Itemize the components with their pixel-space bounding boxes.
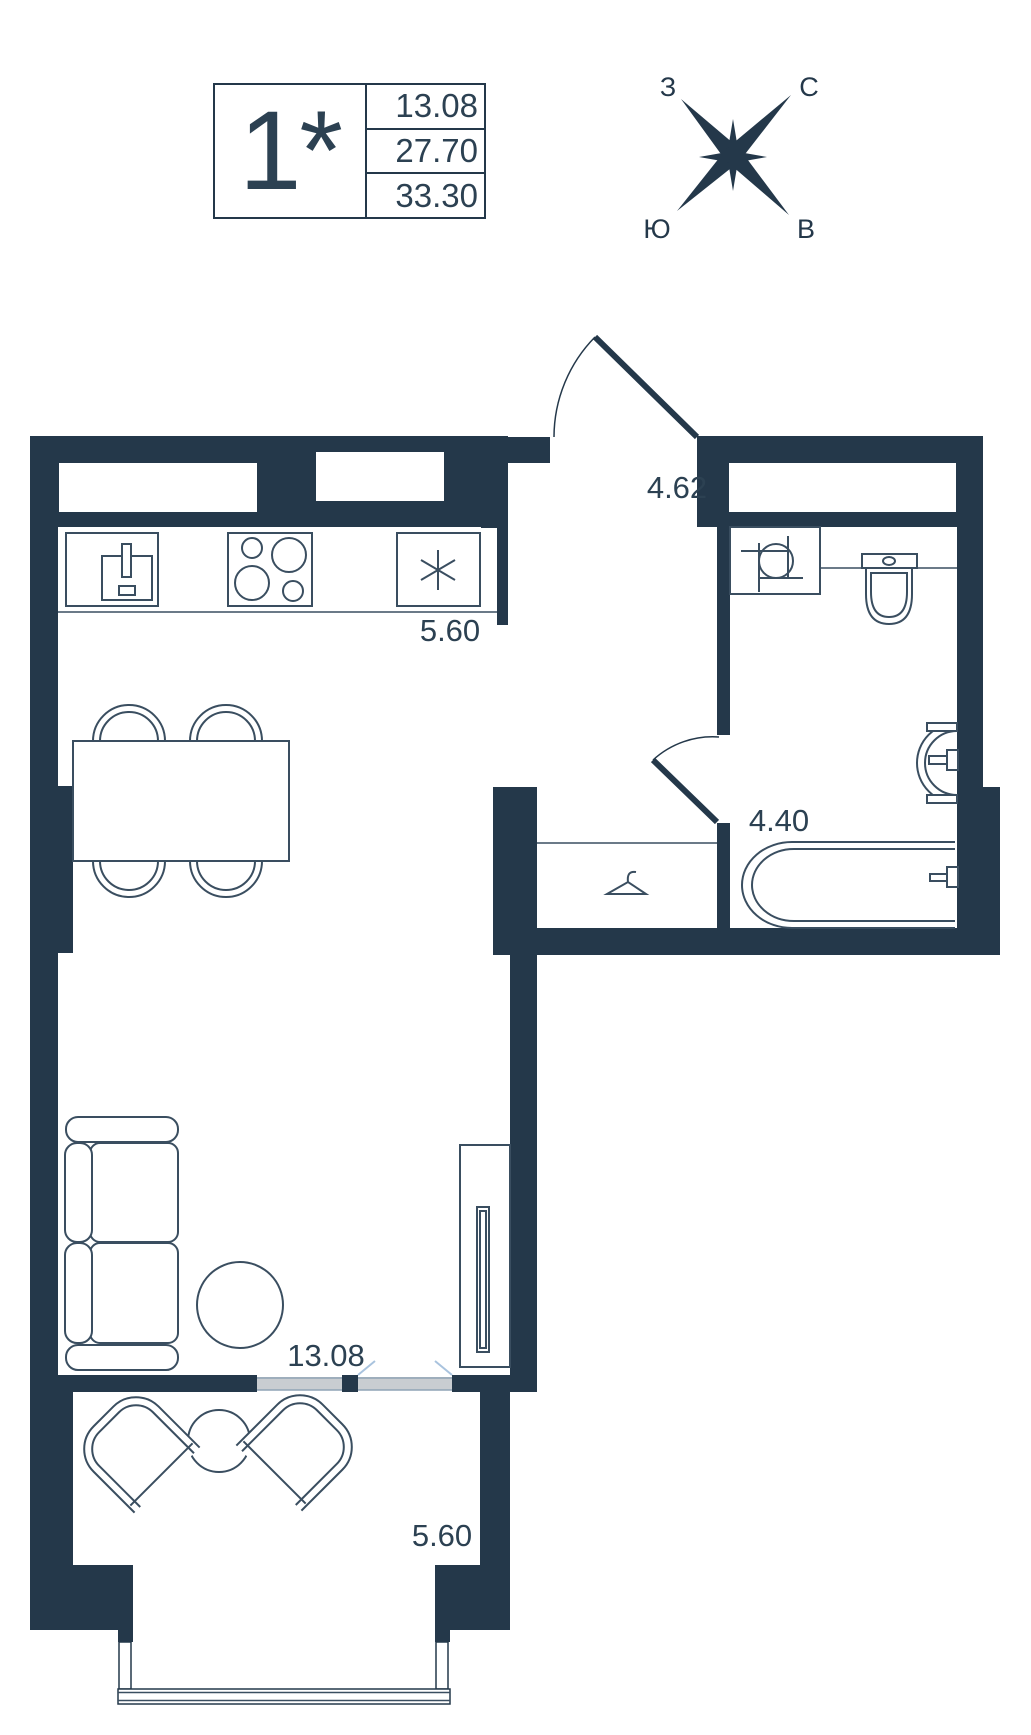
balcony-front-windows [118, 1642, 450, 1704]
corner-sink-icon [917, 723, 958, 803]
kitchen-window-2 [315, 451, 445, 502]
fridge-snowflake-icon [397, 533, 480, 606]
washbasin-icon [730, 527, 820, 594]
living-area-label: 13.08 [287, 1338, 365, 1373]
tv-stand [460, 1145, 510, 1367]
walls [30, 436, 1000, 1704]
compass-south-label: Ю [643, 214, 670, 244]
hallway-area-label: 4.62 [647, 470, 707, 505]
bathtub-icon [742, 842, 958, 928]
compass-star-icon [677, 95, 791, 215]
kitchen-window-1 [58, 462, 258, 513]
dining-chair [93, 861, 165, 897]
floor-plan-page: 1* 13.08 27.70 33.30 [0, 0, 1031, 1735]
toilet-icon [862, 554, 917, 624]
kitchen-area-label: 5.60 [420, 613, 480, 648]
compass-east-label: В [797, 214, 815, 244]
dining-table [73, 741, 289, 861]
dining-chair [190, 861, 262, 897]
compass-north-label: С [799, 72, 819, 102]
compass-west-label: З [660, 72, 676, 102]
dining-chair [93, 705, 165, 741]
sliding-door-ticks [358, 1361, 452, 1375]
stove-icon [228, 533, 312, 606]
side-table [197, 1262, 283, 1348]
floor-plan-svg: 4.62 5.60 4.40 13.08 5.60 З С Ю В [0, 0, 1031, 1735]
kitchen-sink-icon [66, 533, 158, 606]
bathroom-door [653, 737, 719, 822]
balcony-area-label: 5.60 [412, 1518, 472, 1553]
sofa [65, 1117, 178, 1370]
bathroom-area-label: 4.40 [749, 803, 809, 838]
entrance-door [554, 337, 697, 437]
coat-hanger-icon [607, 872, 646, 894]
bathroom-window [728, 462, 957, 513]
compass: З С Ю В [643, 72, 818, 244]
balcony-chair [236, 1382, 365, 1511]
dining-chair [190, 705, 262, 741]
balcony-chair [71, 1384, 200, 1513]
